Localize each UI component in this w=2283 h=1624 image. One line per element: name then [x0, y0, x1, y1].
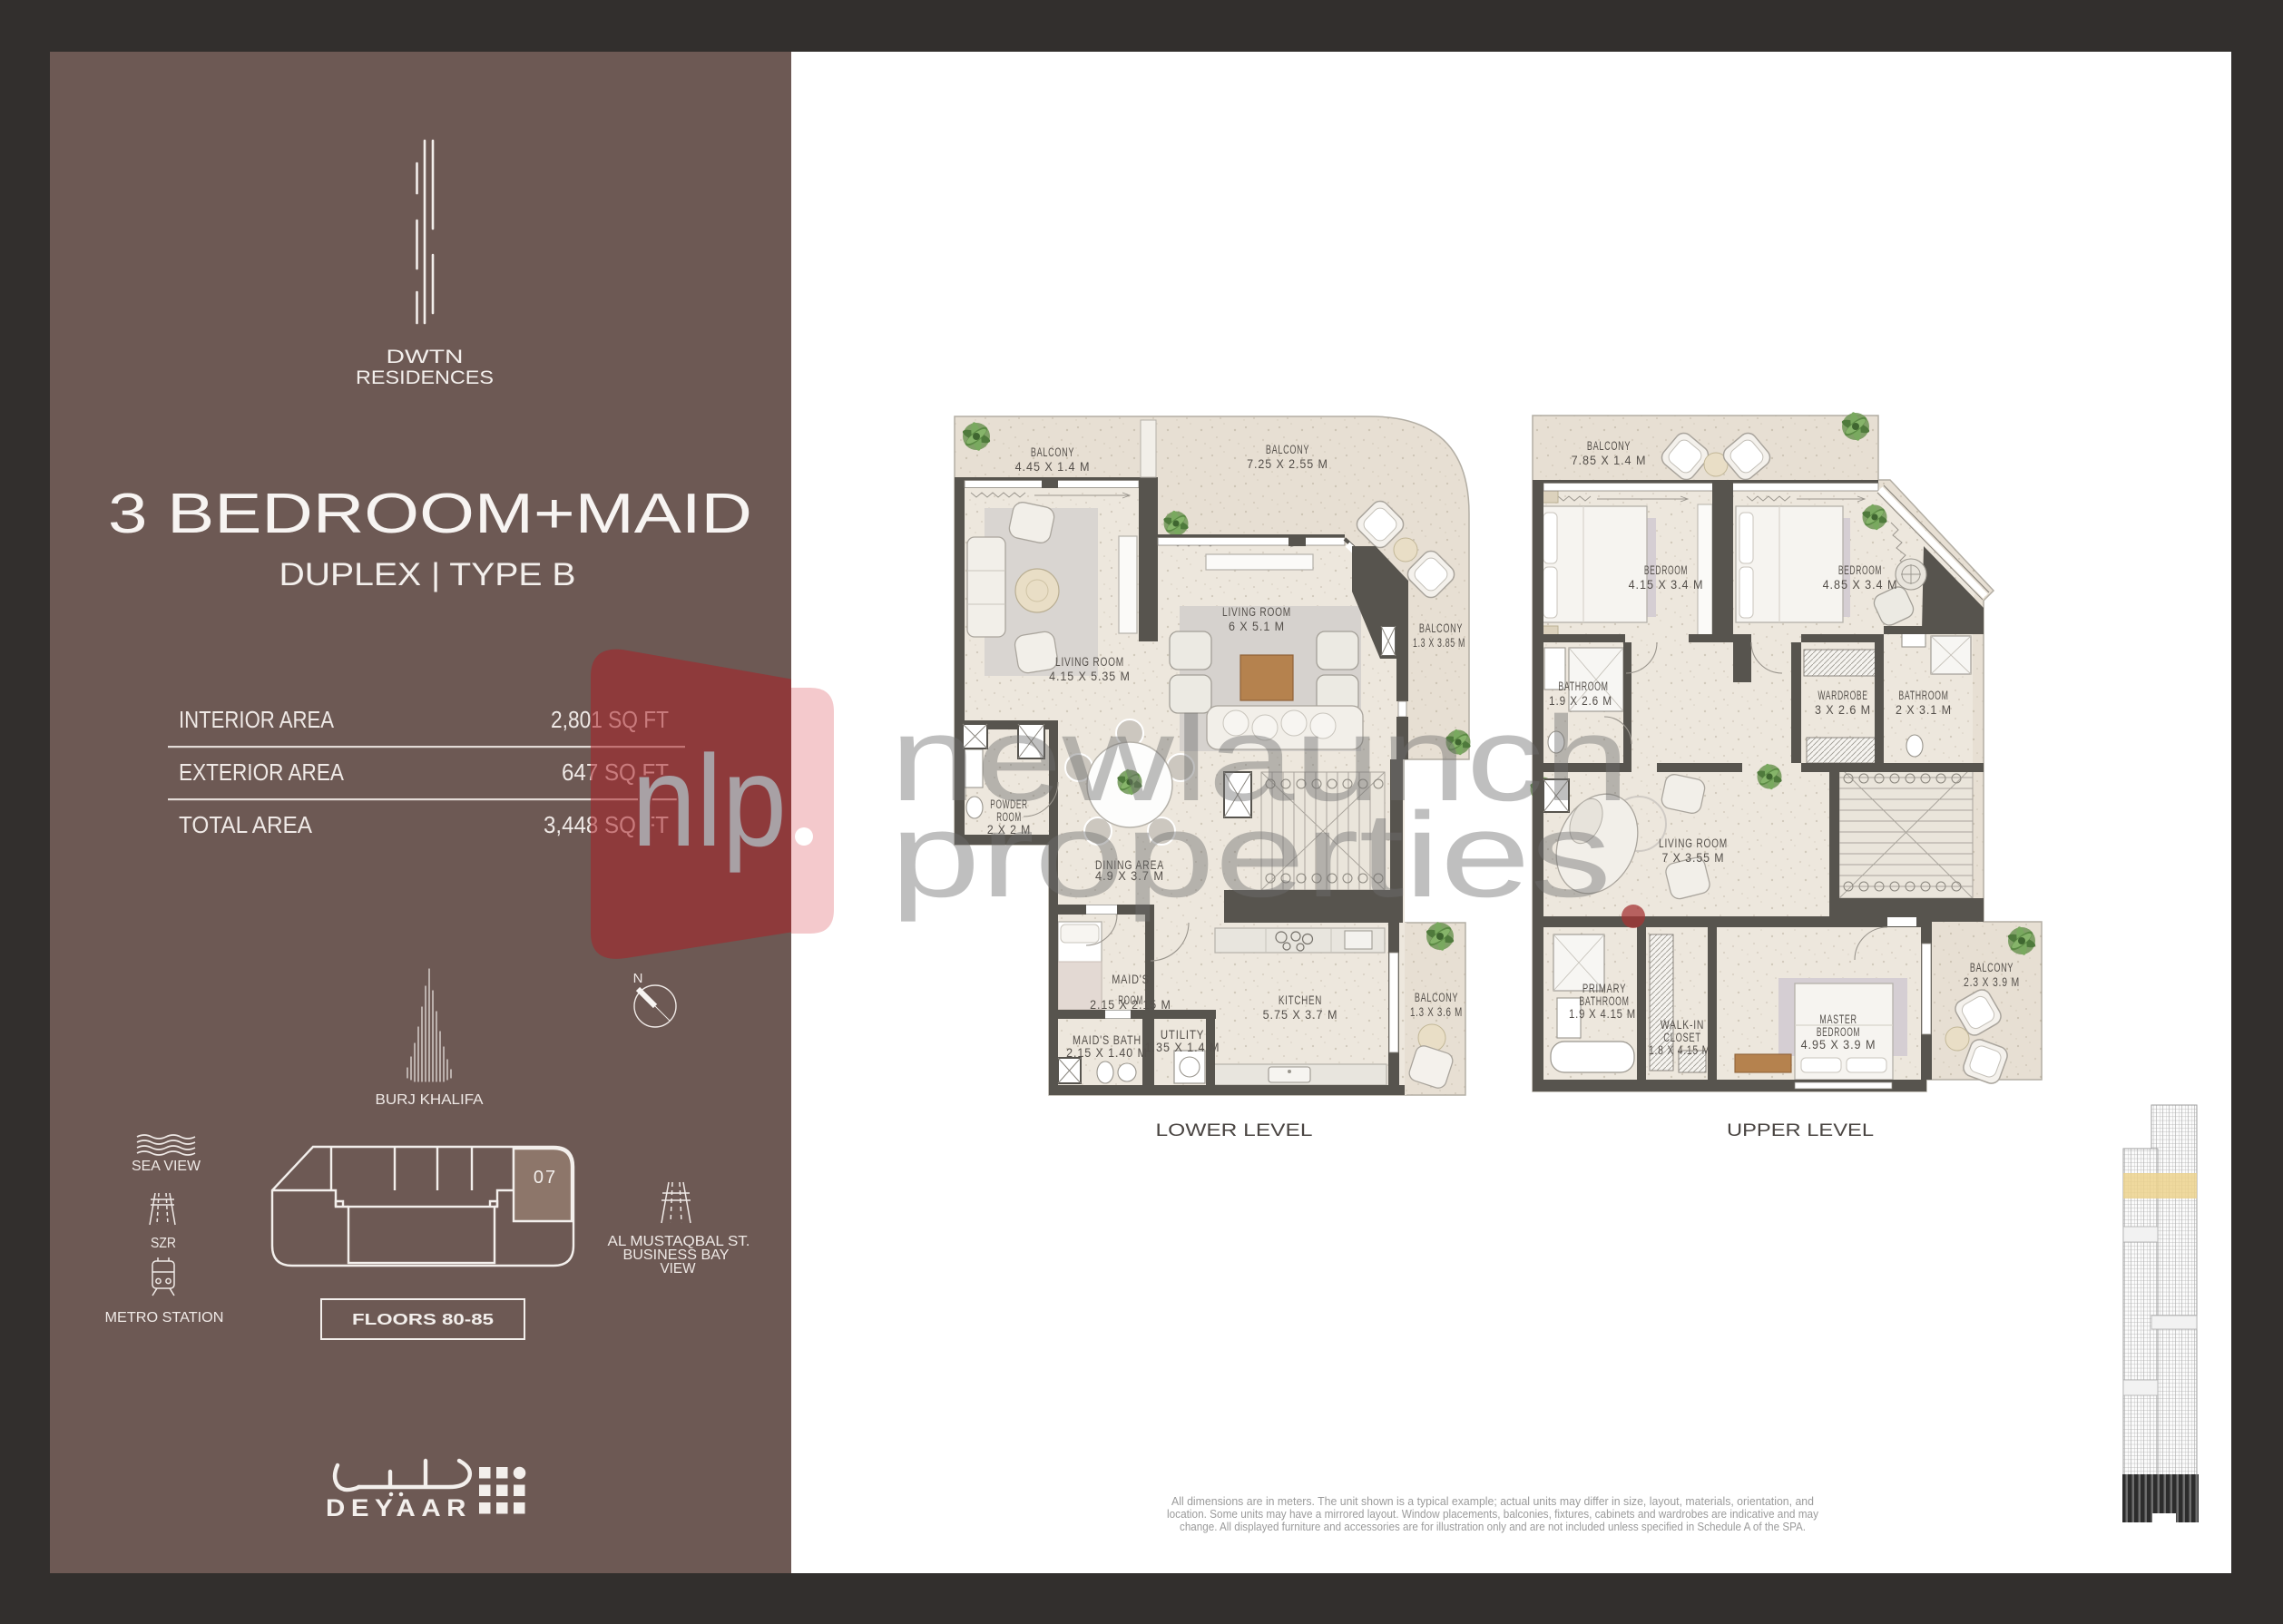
- svg-text:07: 07: [534, 1168, 557, 1188]
- svg-text:BEDROOM: BEDROOM: [1838, 563, 1882, 577]
- svg-text:DEYAAR: DEYAAR: [326, 1494, 472, 1521]
- svg-text:LIVING ROOM: LIVING ROOM: [1222, 605, 1291, 619]
- svg-text:All dimensions are in meters.: All dimensions are in meters. The unit s…: [1171, 1494, 1814, 1508]
- svg-text:KITCHEN: KITCHEN: [1279, 993, 1322, 1007]
- svg-text:CLOSET: CLOSET: [1663, 1031, 1700, 1044]
- svg-text:RESIDENCES: RESIDENCES: [356, 367, 494, 388]
- svg-text:BALCONY: BALCONY: [1419, 621, 1463, 635]
- svg-text:EXTERIOR AREA: EXTERIOR AREA: [179, 758, 345, 786]
- svg-text:1.8 X 4.15 M: 1.8 X 4.15 M: [1649, 1043, 1710, 1057]
- svg-text:WARDROBE: WARDROBE: [1818, 689, 1867, 702]
- svg-text:3 BEDROOM+MAID: 3 BEDROOM+MAID: [108, 483, 752, 545]
- svg-text:FLOORS 80-85: FLOORS 80-85: [352, 1310, 494, 1328]
- svg-text:2 X 3.1 M: 2 X 3.1 M: [1896, 703, 1952, 717]
- svg-text:TOTAL AREA: TOTAL AREA: [179, 811, 313, 838]
- svg-text:MAID'S BATH: MAID'S BATH: [1073, 1033, 1141, 1047]
- svg-text:2.3 X 3.9 M: 2.3 X 3.9 M: [1964, 975, 2020, 989]
- svg-text:7.85 X 1.4 M: 7.85 X 1.4 M: [1572, 454, 1647, 467]
- svg-text:2.15 X 2.15 M: 2.15 X 2.15 M: [1090, 998, 1171, 1012]
- svg-text:BALCONY: BALCONY: [1587, 439, 1631, 453]
- svg-text:2.15 X 1.40 M: 2.15 X 1.40 M: [1066, 1046, 1148, 1060]
- svg-text:7 X 3.55 M: 7 X 3.55 M: [1662, 851, 1725, 865]
- svg-text:1.35 X 1.4 M: 1.35 X 1.4 M: [1145, 1041, 1220, 1054]
- svg-text:BATHROOM: BATHROOM: [1558, 680, 1608, 693]
- svg-text:1.3 X 3.85 M: 1.3 X 3.85 M: [1413, 636, 1465, 650]
- svg-text:5.75 X 3.7 M: 5.75 X 3.7 M: [1263, 1008, 1338, 1022]
- svg-text:MASTER: MASTER: [1819, 1013, 1857, 1026]
- svg-text:UTILITY: UTILITY: [1161, 1028, 1204, 1042]
- svg-text:4.45 X 1.4 M: 4.45 X 1.4 M: [1015, 460, 1091, 474]
- svg-text:change. All displayed furnitur: change. All displayed furniture and acce…: [1180, 1520, 1806, 1533]
- svg-text:3 X 2.6 M: 3 X 2.6 M: [1815, 703, 1871, 717]
- svg-text:INTERIOR AREA: INTERIOR AREA: [179, 706, 335, 733]
- svg-text:BALCONY: BALCONY: [1415, 991, 1458, 1004]
- svg-text:BURJ KHALIFA: BURJ KHALIFA: [376, 1092, 485, 1108]
- svg-text:4.15 X 3.4 M: 4.15 X 3.4 M: [1629, 578, 1704, 592]
- svg-text:BALCONY: BALCONY: [1031, 445, 1074, 459]
- svg-text:BATHROOM: BATHROOM: [1898, 689, 1948, 702]
- svg-text:1.9 X 4.15 M: 1.9 X 4.15 M: [1569, 1007, 1636, 1021]
- svg-text:BATHROOM: BATHROOM: [1579, 994, 1629, 1008]
- svg-text:BALCONY: BALCONY: [1266, 443, 1309, 456]
- svg-text:VIEW: VIEW: [661, 1261, 696, 1277]
- svg-text:LIVING ROOM: LIVING ROOM: [1055, 655, 1124, 669]
- svg-text:4.15 X 5.35 M: 4.15 X 5.35 M: [1049, 670, 1131, 683]
- svg-text:METRO STATION: METRO STATION: [105, 1310, 224, 1326]
- svg-text:7.25 X 2.55 M: 7.25 X 2.55 M: [1247, 457, 1328, 471]
- svg-text:4.85 X 3.4 M: 4.85 X 3.4 M: [1823, 578, 1898, 592]
- svg-text:LOWER LEVEL: LOWER LEVEL: [1156, 1120, 1313, 1140]
- svg-text:BEDROOM: BEDROOM: [1817, 1025, 1860, 1039]
- svg-text:LIVING ROOM: LIVING ROOM: [1659, 836, 1728, 850]
- svg-text:WALK-IN: WALK-IN: [1661, 1018, 1704, 1032]
- svg-text:location. Some units may have: location. Some units may have a mirrored…: [1167, 1507, 1819, 1521]
- svg-text:N: N: [633, 971, 643, 986]
- svg-text:DWTN: DWTN: [387, 347, 464, 367]
- svg-text:BALCONY: BALCONY: [1970, 961, 2014, 974]
- svg-text:SEA VIEW: SEA VIEW: [132, 1159, 201, 1174]
- svg-text:BEDROOM: BEDROOM: [1644, 563, 1688, 577]
- svg-text:properties: properties: [890, 788, 1612, 923]
- svg-text:nlp: nlp: [632, 729, 787, 874]
- svg-text:6 X 5.1 M: 6 X 5.1 M: [1229, 620, 1285, 633]
- svg-text:PRIMARY: PRIMARY: [1582, 982, 1626, 995]
- svg-text:MAID'S: MAID'S: [1112, 973, 1149, 986]
- svg-text:DUPLEX | TYPE B: DUPLEX | TYPE B: [279, 556, 576, 592]
- svg-text:UPPER LEVEL: UPPER LEVEL: [1727, 1120, 1874, 1140]
- svg-text:SZR: SZR: [151, 1236, 176, 1251]
- svg-text:4.95 X 3.9 M: 4.95 X 3.9 M: [1801, 1038, 1876, 1052]
- svg-text:1.3 X 3.6 M: 1.3 X 3.6 M: [1410, 1005, 1463, 1019]
